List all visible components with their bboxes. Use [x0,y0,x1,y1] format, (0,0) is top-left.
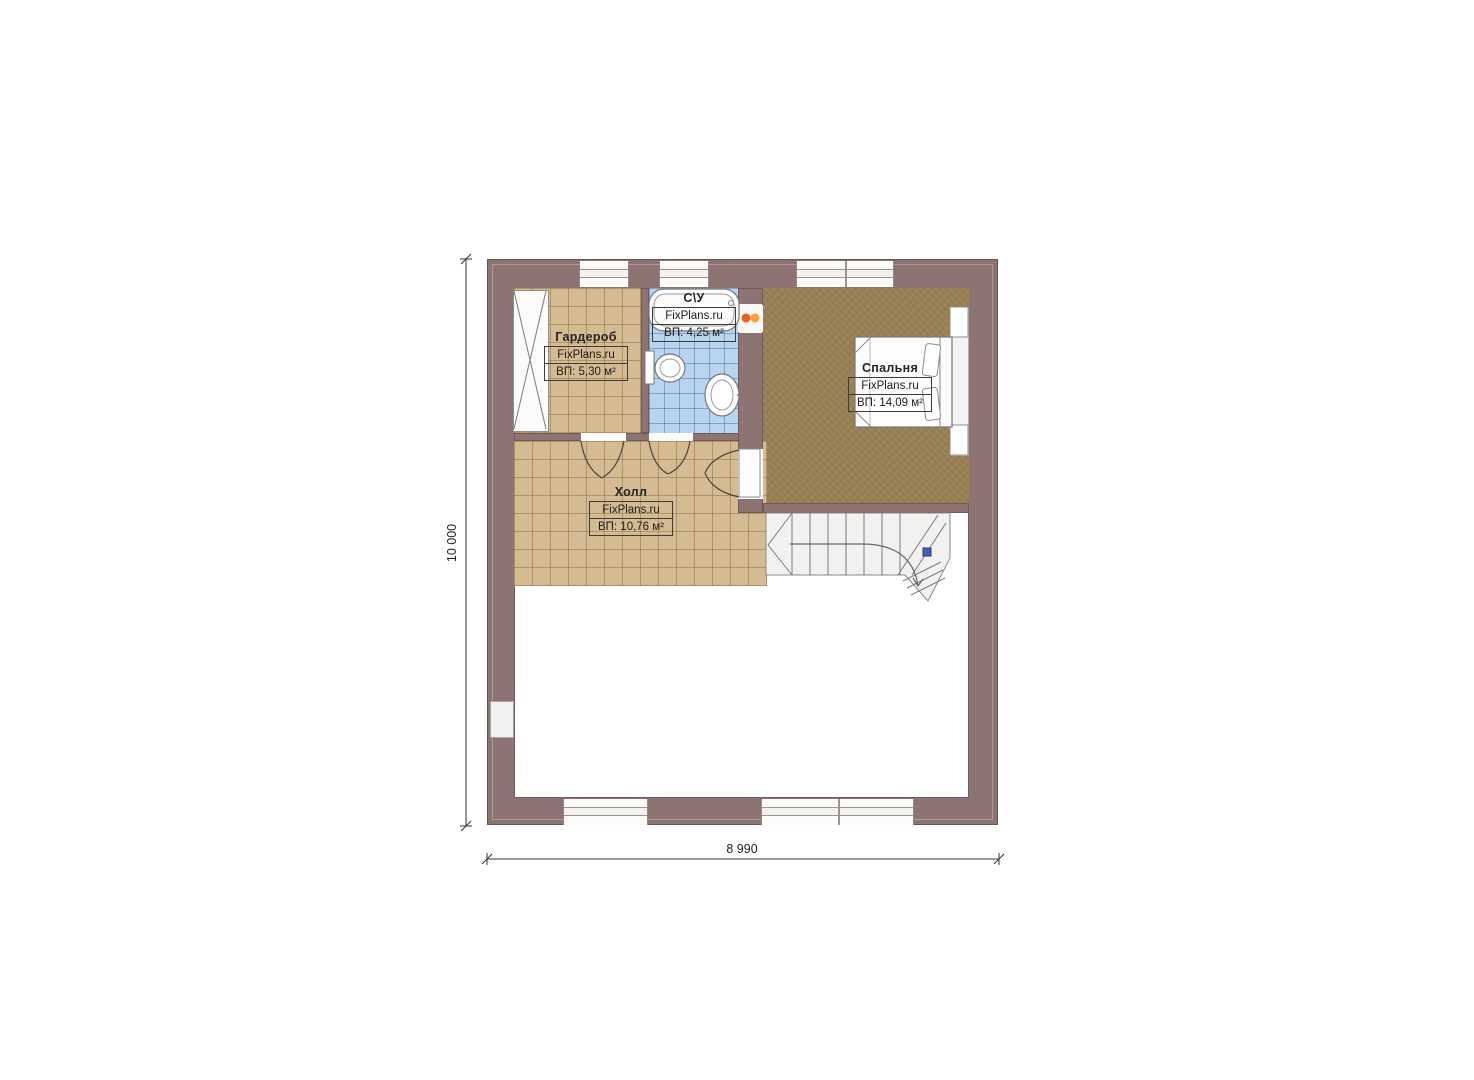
area-box: ВП: 10,76 м² [589,518,673,536]
window-bottom-1 [563,799,648,825]
label-wardrobe: Гардероб FixPlans.ru ВП: 5,30 м² [544,330,628,381]
label-hall: Холл FixPlans.ru ВП: 10,76 м² [589,485,673,536]
area-box: ВП: 5,30 м² [544,363,628,381]
wall-hall-north-1 [514,433,582,441]
room-name: Холл [589,485,673,499]
bathroom-door-opening [649,433,693,441]
wardrobe-door-opening [581,433,626,441]
brand-box: FixPlans.ru [652,307,736,325]
room-name: Спальня [848,361,932,375]
window-top-3 [796,261,894,287]
wall-bedroom-west-3 [738,498,763,513]
window-top-1 [579,261,629,287]
window-mullion [838,799,840,825]
area-box: ВП: 4,25 м² [652,324,736,342]
wall-hall-north-2 [625,433,650,441]
dimension-width: 8 990 [726,842,757,856]
brand-box: FixPlans.ru [589,501,673,519]
west-wall-niche [490,701,514,738]
towel-heater-niche [739,304,762,333]
dimension-line-vertical [460,254,472,831]
window-mullion [845,261,847,287]
wall-bedroom-south [763,503,969,513]
wall-bedroom-west-2 [738,332,763,450]
window-bottom-2 [761,799,914,825]
brand-box: FixPlans.ru [544,346,628,364]
wall-bedroom-west-1 [738,288,763,305]
brand-box: FixPlans.ru [848,377,932,395]
label-bedroom: Спальня FixPlans.ru ВП: 14,09 м² [848,361,932,412]
wall-wardrobe-bathroom [641,288,649,433]
room-name: С\У [652,291,736,305]
dimension-height: 10 000 [445,524,459,562]
area-box: ВП: 14,09 м² [848,394,932,412]
label-bathroom: С\У FixPlans.ru ВП: 4,25 м² [652,291,736,342]
room-name: Гардероб [544,330,628,344]
floor-plan-page: Гардероб FixPlans.ru ВП: 5,30 м² С\У Fix… [0,0,1474,1080]
bedroom-window-recess [951,308,969,456]
bedroom-door-opening [738,449,763,499]
window-top-2 [659,261,709,287]
wall-hall-north-3 [692,433,739,441]
